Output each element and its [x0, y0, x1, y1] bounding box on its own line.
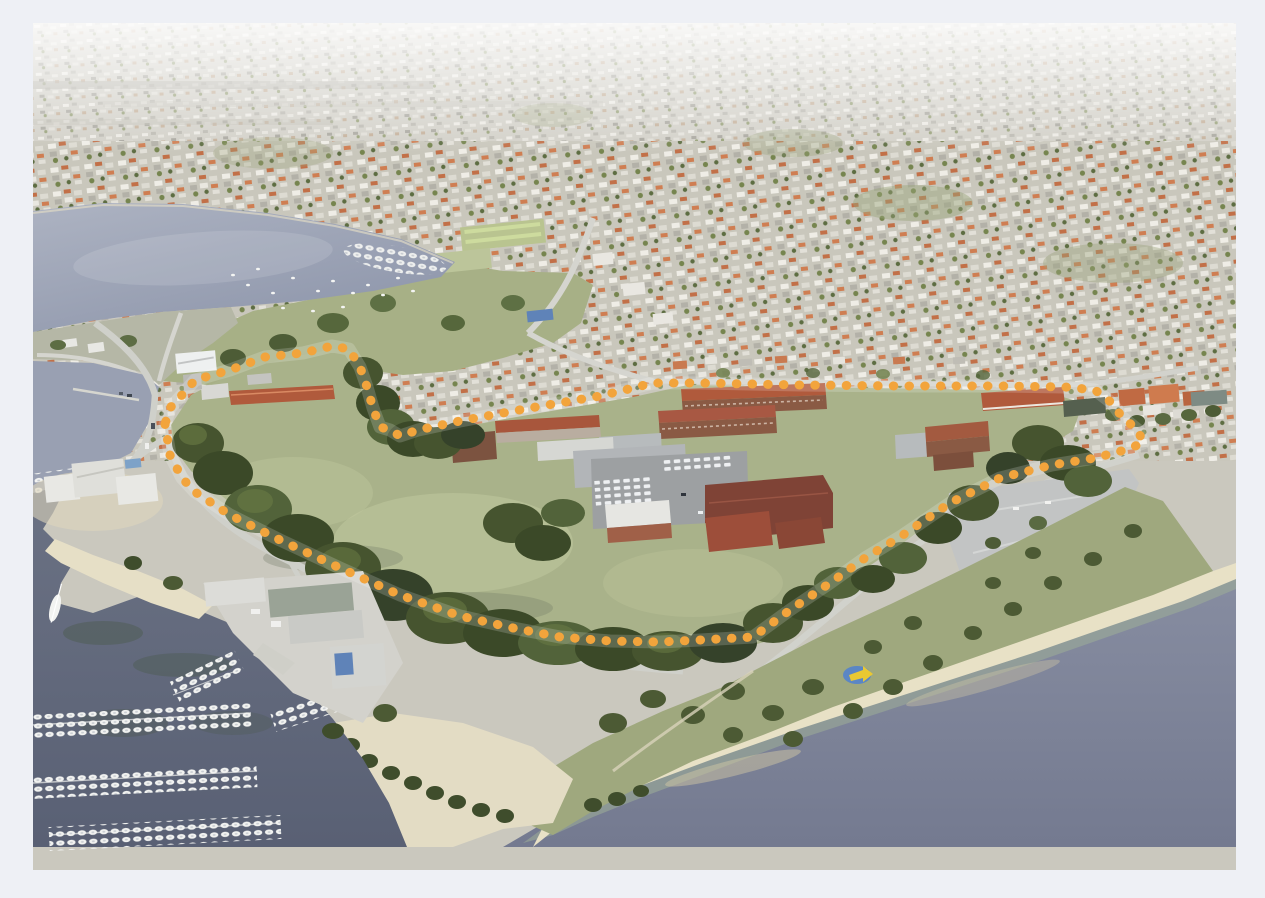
- horizon-haze: [33, 23, 1236, 153]
- page-frame: { "meta": { "title": "Oblique aerial 3D …: [0, 0, 1265, 898]
- pool: [125, 458, 142, 469]
- aerial-photo: [33, 23, 1236, 870]
